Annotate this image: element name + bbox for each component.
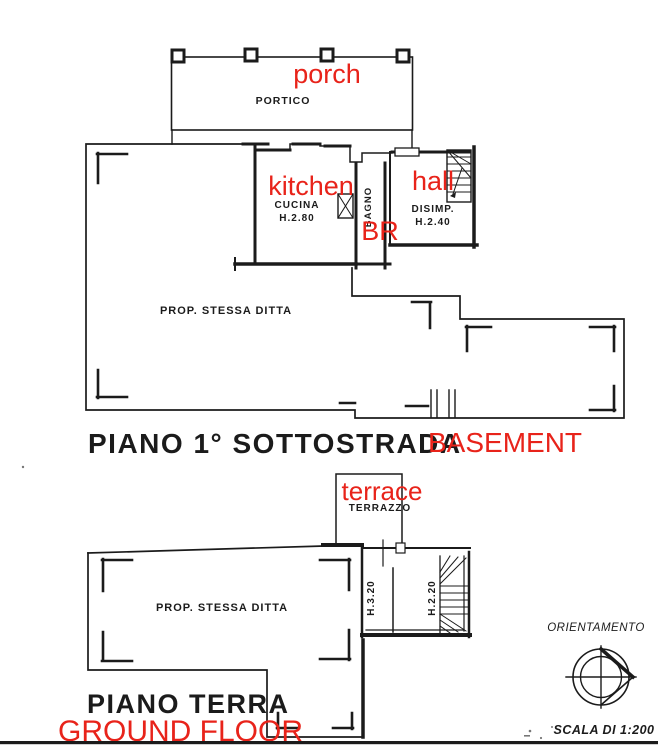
room-height-right: H.2.20 bbox=[427, 580, 438, 615]
br-annotation: BR bbox=[361, 216, 399, 246]
hall-annotation: hall bbox=[412, 166, 454, 196]
basement-plan bbox=[86, 49, 624, 418]
portico-label: PORTICO bbox=[256, 95, 311, 107]
disimp-height: H.2.40 bbox=[415, 217, 450, 228]
basement-bottom-details bbox=[340, 390, 455, 417]
terrace-annotation: terrace bbox=[342, 476, 423, 506]
ground-property-label: PROP. STESSA DITTA bbox=[156, 602, 288, 614]
scale-label: SCALA DI 1:200 bbox=[553, 723, 654, 737]
room-height-left: H.3.20 bbox=[366, 580, 377, 615]
cucina-label: CUCINA bbox=[275, 200, 320, 211]
cucina-height: H.2.80 bbox=[279, 213, 314, 224]
kitchen-annotation: kitchen bbox=[268, 171, 354, 201]
basement-title-en: BASEMENT bbox=[428, 427, 582, 458]
disimp-label: DISIMP. bbox=[412, 204, 455, 215]
porch-column bbox=[245, 49, 257, 61]
orientation-label: ORIENTAMENTO bbox=[547, 622, 645, 634]
porch-annotation: porch bbox=[293, 59, 361, 89]
scanned-floor-plan-page: PORTICO porch CUCINA H.2.80 kitchen BAGN… bbox=[0, 0, 658, 746]
compass bbox=[566, 646, 636, 708]
terrace-door-jamb bbox=[396, 543, 405, 553]
porch-column bbox=[397, 50, 409, 62]
basement-title-it: PIANO 1° SOTTOSTRADA bbox=[88, 428, 462, 459]
compass-crosshair bbox=[566, 646, 636, 708]
basement-property-label: PROP. STESSA DITTA bbox=[160, 305, 292, 317]
floor-plan-drawing: PORTICO porch CUCINA H.2.80 kitchen BAGN… bbox=[0, 0, 658, 746]
page-bottom-edge bbox=[0, 741, 658, 744]
hall-window bbox=[395, 148, 419, 156]
porch-column bbox=[172, 50, 184, 62]
